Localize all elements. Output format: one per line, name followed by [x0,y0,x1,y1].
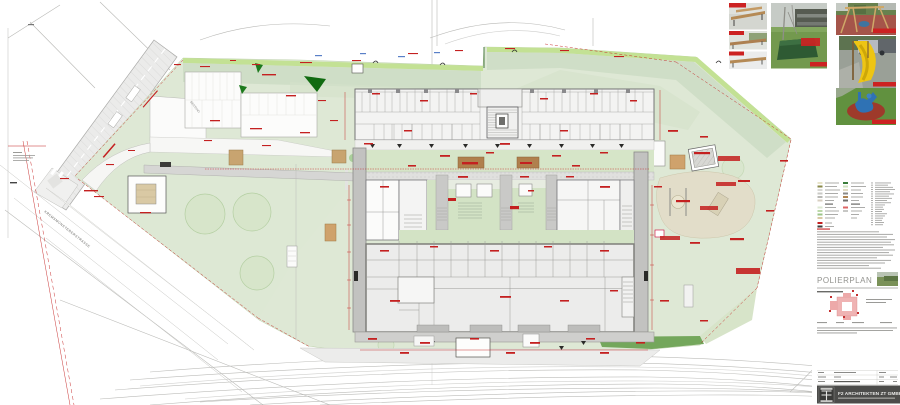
svg-text:POLIERPLAN: POLIERPLAN [817,276,872,285]
svg-text:KREMSMÜNSTERERSTRASSE: KREMSMÜNSTERERSTRASSE [43,210,91,249]
svg-text:F2 ARCHITEKTEN ZT GMBH: F2 ARCHITEKTEN ZT GMBH [838,391,900,397]
